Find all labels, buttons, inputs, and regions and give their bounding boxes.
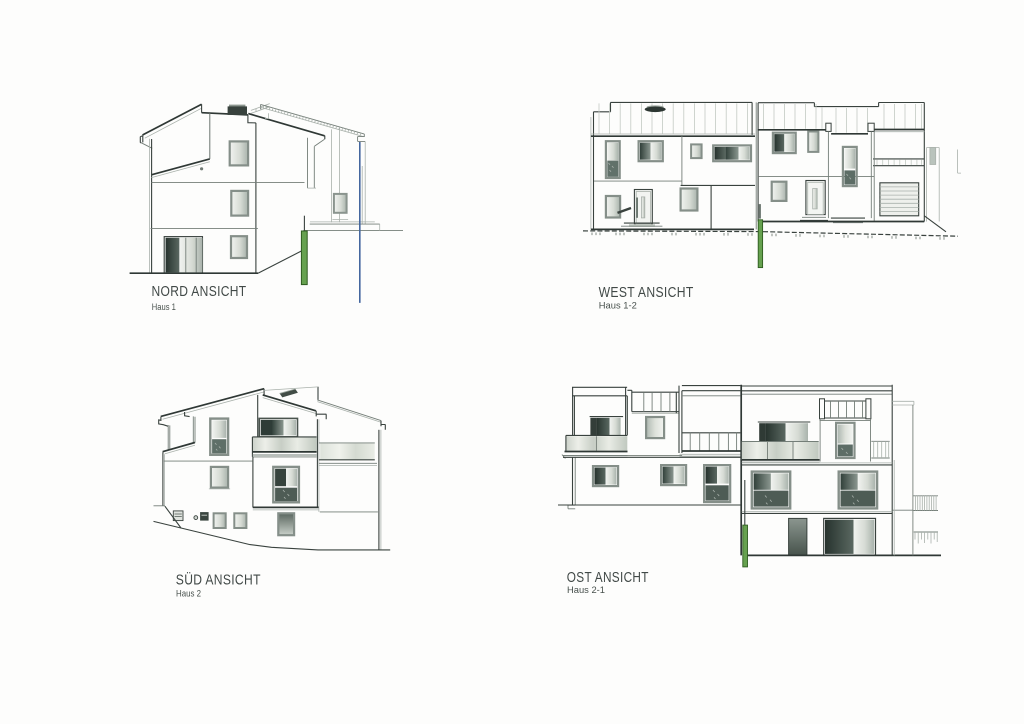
svg-text:WEST ANSICHT: WEST ANSICHT bbox=[599, 285, 694, 301]
svg-text:OST ANSICHT: OST ANSICHT bbox=[567, 570, 649, 586]
svg-text:SÜD ANSICHT: SÜD ANSICHT bbox=[176, 570, 261, 588]
svg-text:NORD ANSICHT: NORD ANSICHT bbox=[152, 284, 247, 300]
svg-text:Haus 2: Haus 2 bbox=[176, 588, 201, 598]
svg-text:Haus 1-2: Haus 1-2 bbox=[599, 301, 637, 311]
svg-text:Haus 2-1: Haus 2-1 bbox=[567, 585, 605, 595]
svg-text:Haus 1: Haus 1 bbox=[152, 302, 176, 312]
